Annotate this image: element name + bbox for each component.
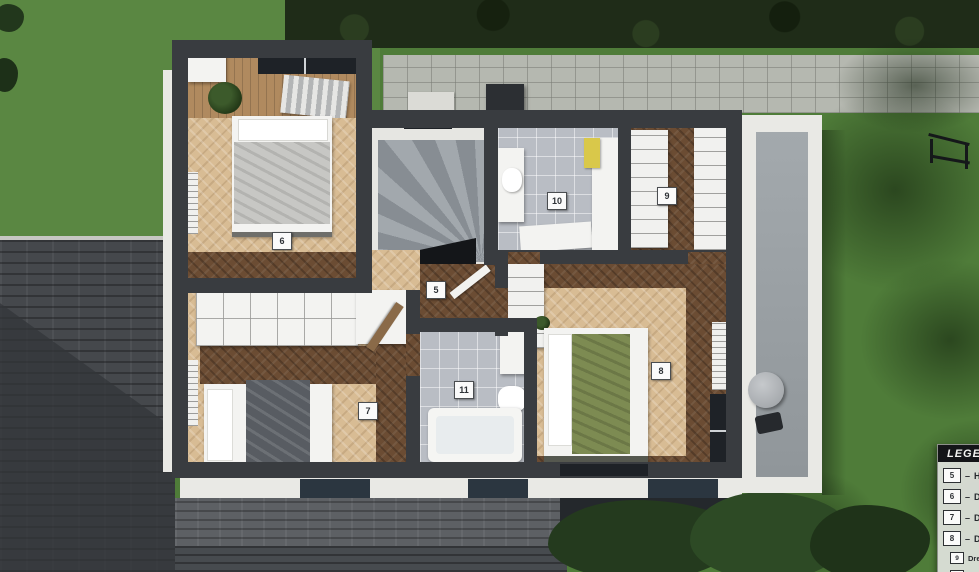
room-marker-5-number: 5 [433,285,438,295]
room-marker-7: 7 [358,402,378,420]
room7-floor-dark-band [200,346,378,384]
room-marker-8-number: 8 [658,366,663,376]
legend-label: Dor [974,534,979,544]
room10-toilet [502,168,522,192]
lower-window-1 [300,479,370,498]
room-marker-8: 8 [651,362,671,380]
legend-number-box: 7 [943,510,961,525]
lower-roof-slope [175,498,567,548]
wall-room6-east [356,40,372,290]
legend-label: Dres [968,554,979,563]
wall-room11-north [410,318,537,332]
room7-bed-pillows [207,389,233,461]
house-cast-shadow [822,130,846,495]
legend-number-box: 8 [943,531,961,546]
room7-radiator [188,360,198,426]
room-marker-6-number: 6 [279,236,284,246]
bush-bottom-3 [810,505,930,572]
bathtub-basin [436,416,514,454]
wall-room6-south [172,278,372,293]
legend-row-7: 7 – Dor [943,510,979,525]
legend-panel: LEGEND 5 – Hol 6 – Dor 7 – Dor 8 – Dor 9… [937,444,979,572]
room-marker-5: 5 [426,281,446,299]
legend-label: Dor [974,492,979,502]
entry-doormat [408,92,454,110]
legend-row-8: 8 – Dor [943,531,979,546]
legend-number-box: 9 [950,552,964,564]
room10-vanity [519,222,593,253]
room-marker-10-number: 10 [552,196,562,206]
terrace-table [748,372,784,408]
legend-dash: – [965,492,970,502]
legend-number-box: 6 [943,489,961,504]
lower-window-2 [468,479,528,499]
legend-row-5: 5 – Hol [943,468,979,483]
room-marker-7-number: 7 [365,406,370,416]
wall-room10-room9 [618,125,631,255]
room6-balcony-wall [188,54,226,82]
wall-room11-room8 [524,322,537,470]
room-marker-11: 11 [454,381,474,399]
towel-yellow [584,138,600,168]
legend-row-6: 6 – Dor [943,489,979,504]
room6-bed-blanket [234,142,330,224]
room-marker-10: 10 [547,192,567,210]
room6-floor-dark-band [186,252,358,280]
wall-south [180,462,742,478]
legend-dash: – [965,513,970,523]
room6-radiator [188,172,198,234]
room-marker-9: 9 [657,187,677,205]
wall-east [726,110,742,478]
room8-bed-pillows [548,334,572,446]
room8-window [560,464,648,476]
balcony-plant [208,82,242,114]
wall-west [172,40,188,478]
lower-terrace-steps [175,546,567,572]
legend-dash: – [965,471,970,481]
garden-frame-leg-2 [965,145,968,169]
legend-number-box: 5 [943,468,961,483]
room-marker-9-number: 9 [664,191,669,201]
lounge-chair [280,75,350,120]
door-gap-room9 [688,252,726,264]
legend-label: Hol [974,471,979,481]
door-gap-room10 [506,252,540,264]
legend-dash: – [965,534,970,544]
garden-frame-leg-1 [930,139,933,163]
room-marker-6: 6 [272,232,292,250]
lower-window-3 [648,479,718,498]
wall-room6-top [172,40,372,58]
room8-bed-blanket [572,334,630,454]
room9-wardrobe-right [694,128,728,250]
room-marker-11-number: 11 [459,385,469,395]
hedge-top [285,0,979,48]
legend-label: Dor [974,513,979,523]
wall-hall-room10 [484,110,498,265]
wall-room7-east [406,290,420,470]
floor-plan-render: 5 6 7 8 9 10 11 LEGEND 5 – Hol 6 – Dor 7… [0,0,979,572]
room7-bed-blanket [246,380,310,468]
legend-row-9: 9 Dres [950,552,979,564]
room6-bed-pillows [238,119,328,141]
legend-title: LEGEND [938,445,979,462]
wall-north-east [490,110,742,128]
door-gap-room7 [406,334,420,376]
room7-wardrobe [196,290,358,346]
